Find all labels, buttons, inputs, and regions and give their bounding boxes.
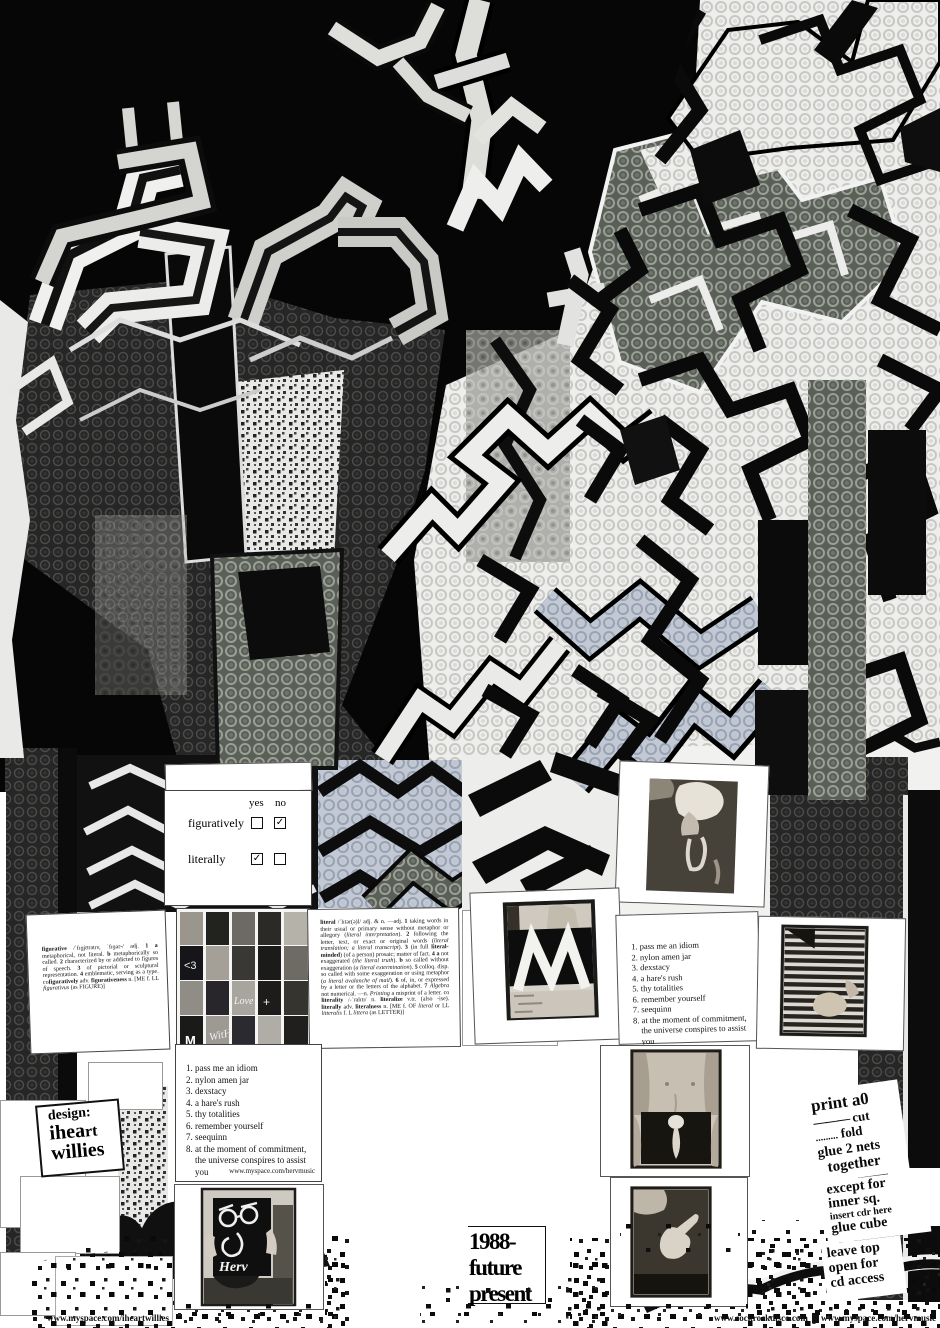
svg-text:Love: Love xyxy=(233,996,254,1007)
svg-text:+: + xyxy=(263,995,270,1009)
svg-text:<3: <3 xyxy=(184,960,197,972)
svg-text:Herv: Herv xyxy=(218,1260,249,1275)
